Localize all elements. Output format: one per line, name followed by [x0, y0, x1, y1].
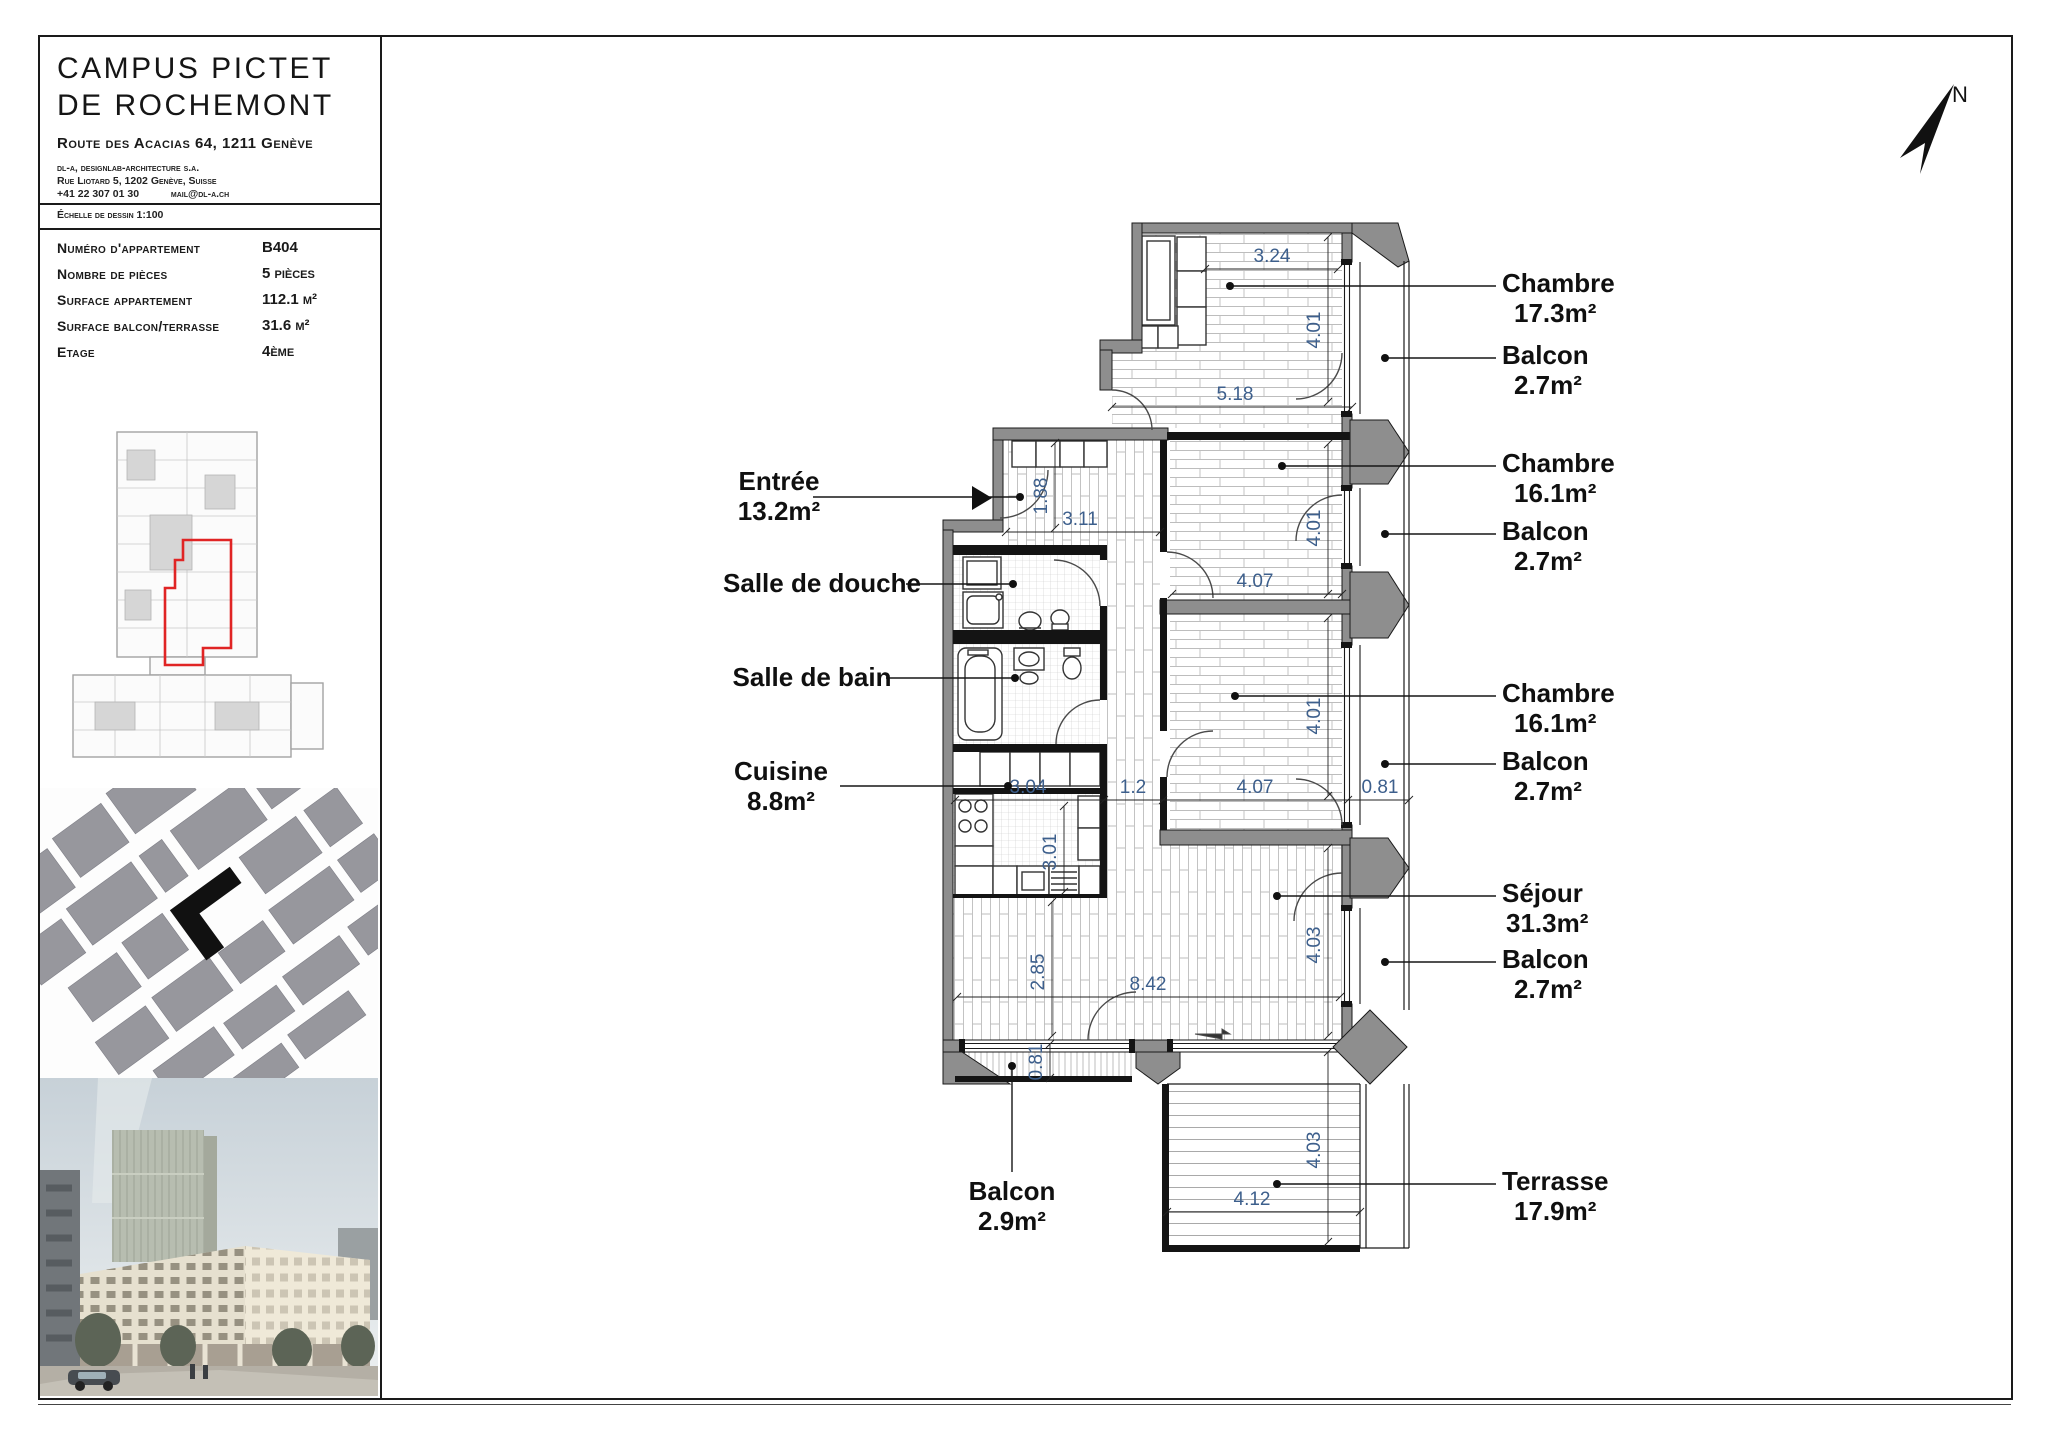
architect-contact: +41 22 307 01 30 mail@dl-a.ch [57, 188, 229, 201]
project-address: Route des Acacias 64, 1211 Genève [57, 135, 313, 152]
sheet-bottom-rule [38, 1404, 2011, 1405]
dim-label: 3.01 [1040, 834, 1061, 871]
dim-label: 1.2 [1120, 777, 1146, 798]
north-arrow: N [1880, 70, 2000, 180]
project-title-line2: DE ROCHEMONT [57, 87, 334, 124]
room-area-balcon-bas: 2.9m² [978, 1206, 1046, 1236]
entrance-arrow-icon [972, 486, 992, 510]
room-area-balcon-1: 2.7m² [1514, 370, 1582, 400]
north-label: N [1952, 82, 1968, 107]
room-label-salle-de-bain: Salle de bain [733, 662, 892, 692]
dim-label: 4.03 [1304, 1132, 1325, 1169]
room-labels-right: Chambre 17.3m² Balcon 2.7m² Chambre 16.1… [1502, 268, 1615, 1226]
dim-label: 4.01 [1304, 698, 1325, 735]
room-label-chambre-3: Chambre [1502, 678, 1615, 708]
row-label: Etage [57, 344, 95, 360]
room-area-chambre-3: 16.1m² [1514, 708, 1597, 738]
architect-address: Rue Liotard 5, 1202 Genève, Suisse [57, 175, 229, 188]
room-label-chambre-2: Chambre [1502, 448, 1615, 478]
floor-terrasse [1167, 1084, 1360, 1245]
row-value: 31.6 m² [262, 317, 310, 334]
architect-email: mail@dl-a.ch [171, 188, 229, 200]
room-area-entree: 13.2m² [738, 496, 821, 526]
dim-label: 4.01 [1304, 312, 1325, 349]
room-label-salle-de-douche: Salle de douche [723, 568, 921, 598]
key-plan-thumbnail [55, 420, 325, 775]
architect-name: dl-a, designlab-architecture s.a. [57, 162, 229, 175]
project-title: CAMPUS PICTET DE ROCHEMONT [57, 50, 334, 124]
table-row: Etage 4ème [57, 340, 357, 366]
dim-label: 3.11 [1062, 509, 1098, 530]
dim-label: 0.81 [1362, 777, 1399, 798]
architect-phone: +41 22 307 01 30 [57, 188, 139, 200]
site-map [40, 788, 378, 1078]
room-area-balcon-4: 2.7m² [1514, 974, 1582, 1004]
room-area-balcon-3: 2.7m² [1514, 776, 1582, 806]
row-value: 4ème [262, 343, 294, 360]
room-floors [953, 233, 1360, 1245]
architect-info: dl-a, designlab-architecture s.a. Rue Li… [57, 162, 229, 201]
titleblock-rule-1 [40, 203, 380, 205]
apartment-info-table: Numéro d'appartement B404 Nombre de pièc… [57, 236, 357, 366]
row-label: Surface balcon/terrasse [57, 318, 219, 334]
room-label-terrasse: Terrasse [1502, 1166, 1609, 1196]
dim-label: 3.24 [1254, 246, 1291, 267]
dim-label: 1.88 [1031, 478, 1052, 515]
titleblock-rule-2 [40, 228, 380, 230]
north-arrow-icon [1900, 84, 1954, 174]
dim-label: 4.07 [1237, 571, 1274, 592]
room-label-balcon-1: Balcon [1502, 340, 1589, 370]
table-row: Nombre de pièces 5 pièces [57, 262, 357, 288]
dim-label: 8.42 [1130, 974, 1167, 995]
dim-label: 4.01 [1304, 510, 1325, 547]
dim-label: 3.04 [1010, 777, 1047, 798]
dim-label: 0.81 [1026, 1044, 1047, 1081]
building-photo [40, 1078, 378, 1396]
room-area-chambre-2: 16.1m² [1514, 478, 1597, 508]
room-label-cuisine: Cuisine [734, 756, 828, 786]
room-label-chambre-1: Chambre [1502, 268, 1615, 298]
dim-label: 2.85 [1028, 954, 1049, 991]
project-title-line1: CAMPUS PICTET [57, 50, 334, 87]
row-value: 5 pièces [262, 265, 315, 282]
row-value: B404 [262, 239, 298, 256]
table-row: Surface appartement 112.1 m² [57, 288, 357, 314]
room-label-balcon-3: Balcon [1502, 746, 1589, 776]
room-area-balcon-2: 2.7m² [1514, 546, 1582, 576]
row-label: Surface appartement [57, 292, 192, 308]
room-label-balcon-4: Balcon [1502, 944, 1589, 974]
sidebar-divider [380, 35, 382, 1398]
room-label-entree: Entrée [739, 466, 820, 496]
row-value: 112.1 m² [262, 291, 317, 308]
row-label: Numéro d'appartement [57, 240, 200, 256]
dim-label: 5.18 [1217, 384, 1254, 405]
floor-plan: 3.24 4.01 5.18 1.88 3.11 4.01 4.07 4.01 … [560, 170, 1720, 1320]
room-area-terrasse: 17.9m² [1514, 1196, 1597, 1226]
drawing-scale: Échelle de dessin 1:100 [57, 209, 163, 221]
dim-label: 4.07 [1237, 777, 1274, 798]
room-area-cuisine: 8.8m² [747, 786, 815, 816]
photo-neighbor-building [40, 1170, 80, 1396]
dim-label: 4.03 [1304, 927, 1325, 964]
dim-label: 4.12 [1234, 1189, 1271, 1210]
room-area-chambre-1: 17.3m² [1514, 298, 1597, 328]
table-row: Numéro d'appartement B404 [57, 236, 357, 262]
row-label: Nombre de pièces [57, 266, 167, 282]
room-label-sejour: Séjour [1502, 878, 1583, 908]
room-area-sejour: 31.3m² [1506, 908, 1589, 938]
table-row: Surface balcon/terrasse 31.6 m² [57, 314, 357, 340]
room-label-balcon-2: Balcon [1502, 516, 1589, 546]
room-label-balcon-bas: Balcon [969, 1176, 1056, 1206]
